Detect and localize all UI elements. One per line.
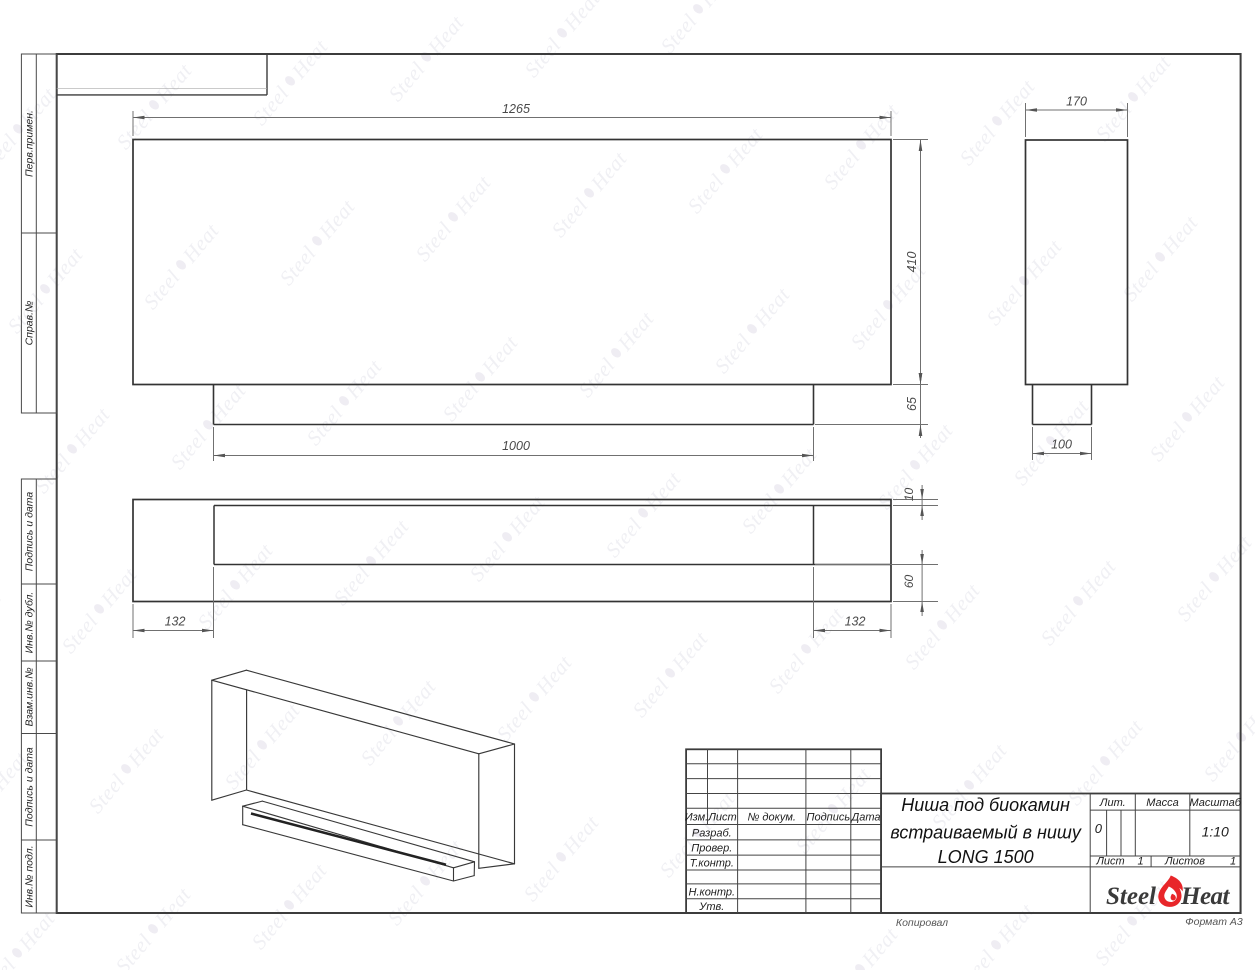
svg-text:Масштаб: Масштаб (1190, 797, 1242, 809)
svg-text:Инв.№ подл.: Инв.№ подл. (24, 845, 36, 907)
svg-text:Копировал: Копировал (896, 917, 948, 929)
svg-text:1000: 1000 (502, 439, 530, 453)
svg-text:1:10: 1:10 (1202, 824, 1229, 840)
svg-text:Масса: Масса (1146, 797, 1179, 809)
svg-text:132: 132 (165, 615, 186, 629)
svg-text:132: 132 (845, 615, 866, 629)
svg-text:Справ.№: Справ.№ (24, 301, 36, 346)
svg-text:Heat: Heat (1180, 883, 1231, 910)
svg-text:Взам.инв.№: Взам.инв.№ (24, 667, 36, 726)
svg-text:60: 60 (902, 575, 916, 589)
svg-text:1265: 1265 (502, 102, 530, 116)
svg-text:Провер.: Провер. (691, 843, 732, 855)
svg-text:встраиваемый в нишу: встраиваемый в нишу (890, 823, 1081, 843)
svg-text:Дата: Дата (849, 812, 880, 824)
svg-text:Лит.: Лит. (1099, 797, 1126, 809)
svg-text:1: 1 (1137, 856, 1143, 868)
svg-text:Ниша под биокамин: Ниша под биокамин (901, 795, 1070, 815)
svg-text:Перв.примен.: Перв.примен. (24, 110, 36, 177)
svg-text:Изм.: Изм. (685, 812, 708, 824)
svg-text:Н.контр.: Н.контр. (689, 886, 736, 898)
svg-text:0: 0 (1095, 821, 1103, 836)
svg-text:Листов: Листов (1164, 856, 1205, 868)
svg-text:65: 65 (905, 397, 919, 411)
svg-text:Инв.№ дубл.: Инв.№ дубл. (24, 592, 36, 654)
svg-text:Разраб.: Разраб. (692, 827, 732, 839)
svg-text:Лист: Лист (707, 812, 736, 824)
svg-text:Формат A3: Формат A3 (1185, 916, 1243, 928)
svg-text:Steel: Steel (1106, 883, 1156, 910)
svg-text:1: 1 (1230, 856, 1236, 868)
svg-text:Подпись и дата: Подпись и дата (24, 747, 36, 827)
svg-text:100: 100 (1051, 438, 1072, 452)
svg-text:Лист: Лист (1095, 856, 1124, 868)
svg-text:Утв.: Утв. (698, 901, 724, 913)
svg-text:410: 410 (905, 252, 919, 273)
svg-text:Подпись: Подпись (806, 812, 850, 824)
svg-text:LONG 1500: LONG 1500 (938, 847, 1034, 867)
svg-text:170: 170 (1066, 95, 1087, 109)
svg-text:10: 10 (902, 488, 916, 502)
svg-text:№ докум.: № докум. (747, 812, 795, 824)
svg-text:Т.контр.: Т.контр. (690, 858, 734, 870)
svg-text:Подпись и дата: Подпись и дата (24, 492, 36, 572)
